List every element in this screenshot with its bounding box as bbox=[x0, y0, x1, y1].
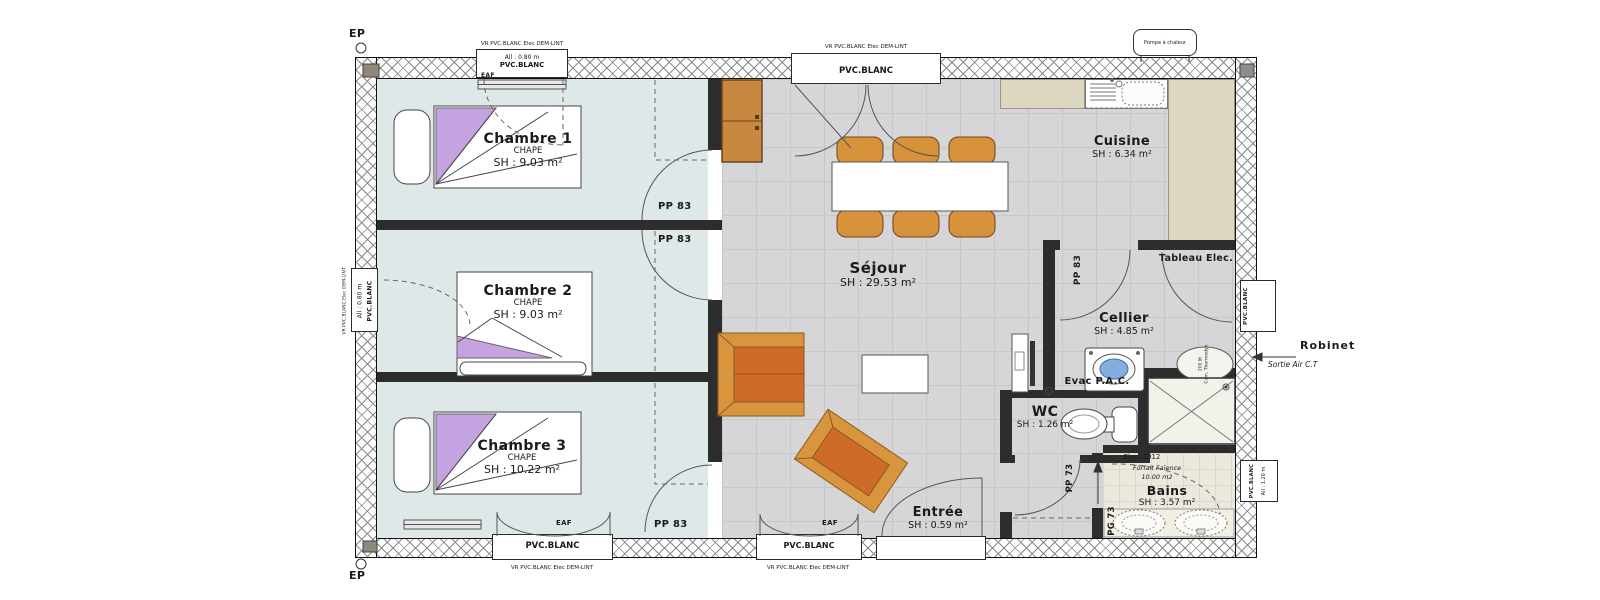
window-note-left-chambre2: VR PVC.BLANC Elec DEM-LINT bbox=[343, 267, 348, 334]
window-bains-right bbox=[1240, 460, 1278, 502]
wall-cellier-top bbox=[1138, 240, 1235, 250]
heat-pump-label: Pompe à chaleur bbox=[1144, 40, 1186, 46]
room-label-bains: Bains SH : 3.57 m² bbox=[1139, 484, 1196, 509]
ep-marker-top: EP bbox=[349, 27, 365, 40]
door-label-pp83-chambre3: PP 83 bbox=[654, 519, 688, 530]
door-label-pp83-chambre1: PP 83 bbox=[658, 201, 692, 212]
window-allege-bains: All : 1.20 m bbox=[1261, 467, 1267, 496]
wall-entree-east-stub bbox=[1000, 512, 1012, 538]
kitchen-counter-top bbox=[1000, 79, 1085, 109]
door-pvc-label: PVC.BLANC bbox=[792, 66, 940, 76]
wall-bedrooms-living-upper bbox=[708, 79, 722, 150]
elec-2012-label: Elec. 2012 bbox=[1124, 453, 1161, 461]
room-area: SH : 9.03 m² bbox=[484, 157, 573, 170]
tableau-elec-label: Tableau Elec. bbox=[1159, 253, 1233, 264]
window-note-bottom-chambre3: VR PVC.BLANC Elec DEM-LINT bbox=[511, 565, 593, 571]
eaf-label-sejour: EAF bbox=[822, 519, 838, 527]
floor-plan: All : 0.80 m PVC.BLANC PVC.BLANC PVC.BLA… bbox=[0, 0, 1600, 600]
ep-marker-bottom: EP bbox=[349, 569, 365, 582]
room-area: SH : 29.53 m² bbox=[840, 277, 916, 290]
wall-bains-top bbox=[1103, 445, 1235, 453]
room-label-chambre-1: Chambre 1 CHAPE SH : 9.03 m² bbox=[484, 131, 573, 170]
door-label-pp73-wc: PP 73 bbox=[1065, 464, 1075, 493]
room-area: SH : 3.57 m² bbox=[1139, 498, 1196, 508]
wall-cellier-left bbox=[1043, 240, 1055, 392]
room-label-entree: Entrée SH : 0.59 m² bbox=[908, 506, 968, 532]
window-pvc-bains: PVC.BLANC bbox=[1249, 464, 1255, 499]
window-note-top-sejour: VR PVC.BLANC Elec DEM-LINT bbox=[825, 44, 907, 50]
wall-chambre2-chambre3 bbox=[377, 372, 722, 382]
room-area: SH : 9.03 m² bbox=[484, 309, 573, 322]
heat-pump-unit: Pompe à chaleur bbox=[1133, 29, 1197, 56]
room-name: Séjour bbox=[840, 260, 916, 277]
wall-chambre1-chambre2 bbox=[377, 220, 722, 230]
window-pvc-label: PVC.BLANC bbox=[757, 541, 861, 550]
water-heater-label: 200 lit Cum. Thermodyn bbox=[1199, 345, 1212, 384]
robinet-label: Robinet bbox=[1300, 339, 1355, 352]
wall-wc-left bbox=[1000, 390, 1012, 463]
room-name: Bains bbox=[1139, 484, 1196, 498]
window-sejour-bottom: PVC.BLANC bbox=[756, 534, 862, 560]
door-sejour-top: PVC.BLANC bbox=[791, 53, 941, 84]
kitchen-sink-unit bbox=[1085, 79, 1168, 109]
faience-label-line2: 10.00 m2 bbox=[1141, 473, 1172, 481]
kitchen-counter-right bbox=[1168, 79, 1235, 242]
wall-cellier-top-stub bbox=[1043, 240, 1060, 250]
wall-bains-left-lower bbox=[1092, 508, 1103, 538]
door-label-pp83-cellier: PP 83 bbox=[1073, 255, 1083, 285]
window-chambre2-left bbox=[351, 268, 378, 332]
room-area: SH : 4.85 m² bbox=[1094, 327, 1154, 338]
room-area: SH : 6.34 m² bbox=[1092, 150, 1152, 161]
room-name: Chambre 2 bbox=[484, 283, 573, 299]
door-label-pg73-bains: PG 73 bbox=[1107, 506, 1117, 536]
window-pvc-cellier: PVC.BLANC bbox=[1243, 287, 1249, 325]
window-pvc-label: PVC.BLANC bbox=[493, 541, 612, 551]
room-name: Cellier bbox=[1094, 312, 1154, 327]
room-area: SH : 10.22 m² bbox=[478, 464, 567, 477]
room-label-cuisine: Cuisine SH : 6.34 m² bbox=[1092, 135, 1152, 161]
room-name: Chambre 1 bbox=[484, 131, 573, 147]
room-name: WC bbox=[1017, 404, 1074, 420]
entry-door-frame bbox=[876, 536, 986, 560]
window-note-bottom-sejour: VR PVC.BLANC Elec DEM-LINT bbox=[767, 565, 849, 571]
wall-bains-left-stub bbox=[1092, 453, 1103, 463]
room-name: Chambre 3 bbox=[478, 438, 567, 454]
water-heater-type: Cum. Thermodyn bbox=[1205, 345, 1211, 384]
room-label-chambre-2: Chambre 2 CHAPE SH : 9.03 m² bbox=[484, 283, 573, 322]
sortie-air-label: Sortie Air C.T bbox=[1268, 360, 1317, 369]
window-pvc-left: PVC.BLANC bbox=[367, 281, 374, 322]
wall-wc-bottom-left bbox=[1000, 455, 1015, 463]
room-name: Entrée bbox=[908, 506, 968, 521]
eaf-label-chambre3: EAF bbox=[556, 519, 572, 527]
room-label-wc: WC SH : 1.26 m² bbox=[1017, 404, 1074, 430]
eaf-label-chambre1: EAF bbox=[481, 72, 495, 79]
faience-label-line1: Forfait Faïence bbox=[1133, 464, 1181, 472]
room-label-chambre-3: Chambre 3 CHAPE SH : 10.22 m² bbox=[478, 438, 567, 477]
door-label-pp83-chambre2: PP 83 bbox=[658, 234, 692, 245]
room-label-cellier: Cellier SH : 4.85 m² bbox=[1094, 312, 1154, 338]
wall-wc-top bbox=[1000, 390, 1150, 398]
evac-pac-label: Evac P.A.C. bbox=[1065, 376, 1130, 387]
wall-shower-top bbox=[1148, 368, 1235, 378]
window-note-top-chambre1: VR PVC.BLANC Elec DEM-LINT bbox=[481, 41, 563, 47]
window-pvc-label: PVC.BLANC bbox=[477, 61, 567, 69]
window-allege-label: All : 0.80 m bbox=[477, 54, 567, 61]
window-chambre3-bottom: PVC.BLANC bbox=[492, 534, 613, 560]
room-area: SH : 0.59 m² bbox=[908, 521, 968, 532]
window-allege-left: All : 0.80 m bbox=[357, 284, 364, 318]
room-name: Cuisine bbox=[1092, 135, 1152, 150]
room-area: SH : 1.26 m² bbox=[1017, 420, 1074, 430]
room-label-sejour: Séjour SH : 29.53 m² bbox=[840, 260, 916, 290]
